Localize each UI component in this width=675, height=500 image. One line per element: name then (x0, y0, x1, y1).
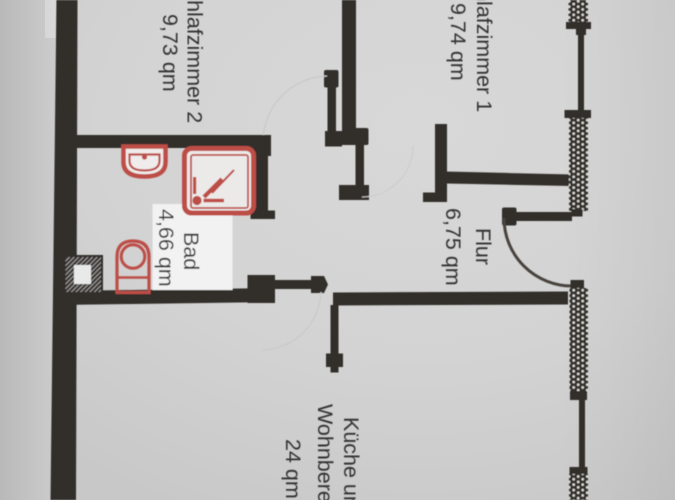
svg-text:Schlafzimmer 1: Schlafzimmer 1 (472, 0, 496, 112)
svg-text:Küche und: Küche und (339, 417, 363, 500)
svg-text:9,73 qm: 9,73 qm (158, 14, 182, 92)
svg-text:9,74 qm: 9,74 qm (446, 3, 470, 81)
svg-text:6,75 qm: 6,75 qm (441, 208, 465, 286)
svg-text:Schlafzimmer 2: Schlafzimmer 2 (183, 0, 207, 123)
svg-text:4,66 qm: 4,66 qm (154, 209, 178, 287)
svg-text:Wohnbereich: Wohnbereich (313, 404, 337, 500)
svg-text:24 qm: 24 qm (281, 439, 305, 499)
svg-text:Flur: Flur (471, 228, 495, 265)
svg-text:Bad: Bad (179, 232, 203, 270)
